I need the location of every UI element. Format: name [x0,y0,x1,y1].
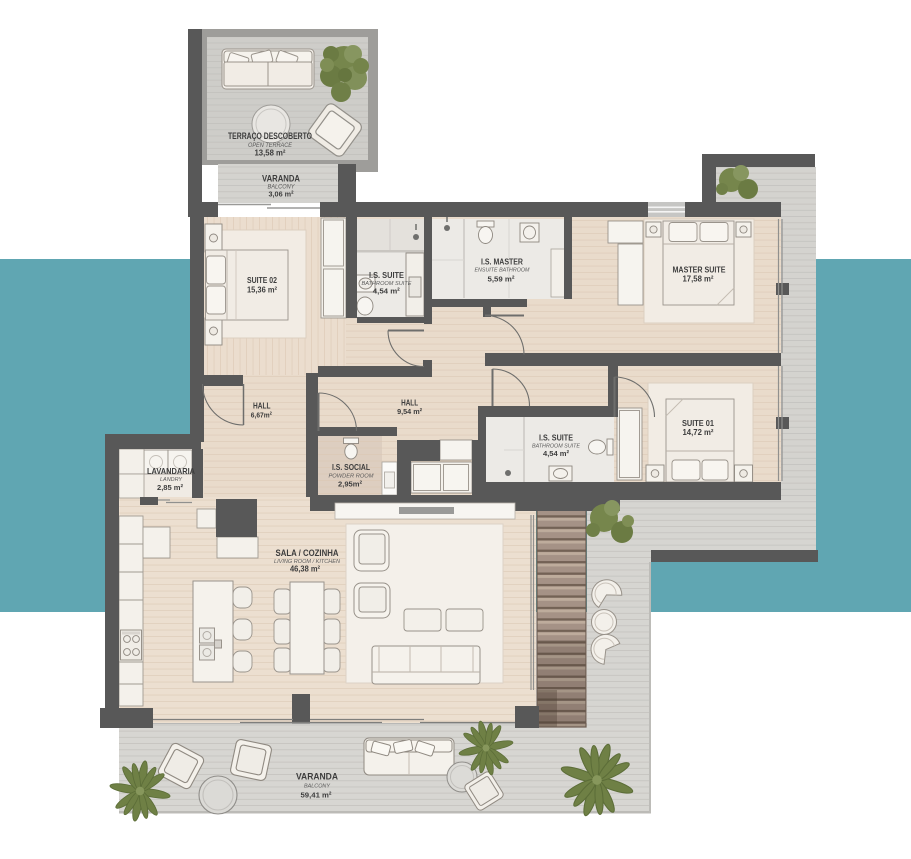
svg-text:9,54 m²: 9,54 m² [397,407,422,416]
svg-text:MASTER SUITE: MASTER SUITE [673,266,726,275]
svg-text:TERRAÇO DESCOBERTO: TERRAÇO DESCOBERTO [228,131,312,142]
svg-text:2,95m²: 2,95m² [338,480,362,489]
svg-text:I.S. SUITE: I.S. SUITE [369,270,404,280]
svg-text:I.S. MASTER: I.S. MASTER [481,257,524,267]
svg-text:I.S. SOCIAL: I.S. SOCIAL [332,462,370,472]
svg-text:LAVANDARIA: LAVANDARIA [147,466,195,476]
svg-text:6,67m²: 6,67m² [251,411,272,420]
svg-text:ENSUITE BATHROOM: ENSUITE BATHROOM [475,268,530,274]
svg-text:SUITE 01: SUITE 01 [682,419,714,428]
svg-text:VARANDA: VARANDA [262,174,300,184]
svg-text:BALCONY: BALCONY [304,784,331,790]
svg-text:13,58 m²: 13,58 m² [255,149,286,158]
svg-text:HALL: HALL [401,398,418,407]
svg-text:4,54 m²: 4,54 m² [373,287,400,296]
svg-text:SUITE 02: SUITE 02 [247,276,277,285]
svg-text:17,58 m²: 17,58 m² [683,275,714,284]
svg-text:14,72 m²: 14,72 m² [683,428,714,437]
svg-text:SALA / COZINHA: SALA / COZINHA [276,548,339,559]
svg-text:2,85 m²: 2,85 m² [157,483,183,492]
svg-text:HALL: HALL [253,402,271,411]
svg-text:59,41 m²: 59,41 m² [301,791,332,800]
svg-text:5,59 m²: 5,59 m² [488,275,515,284]
svg-text:4,54 m²: 4,54 m² [543,449,569,458]
svg-text:VARANDA: VARANDA [296,772,338,782]
svg-text:I.S. SUITE: I.S. SUITE [539,433,573,443]
svg-text:15,36 m²: 15,36 m² [247,286,277,295]
svg-text:3,06 m²: 3,06 m² [269,190,294,199]
svg-text:46,38 m²: 46,38 m² [290,565,320,574]
